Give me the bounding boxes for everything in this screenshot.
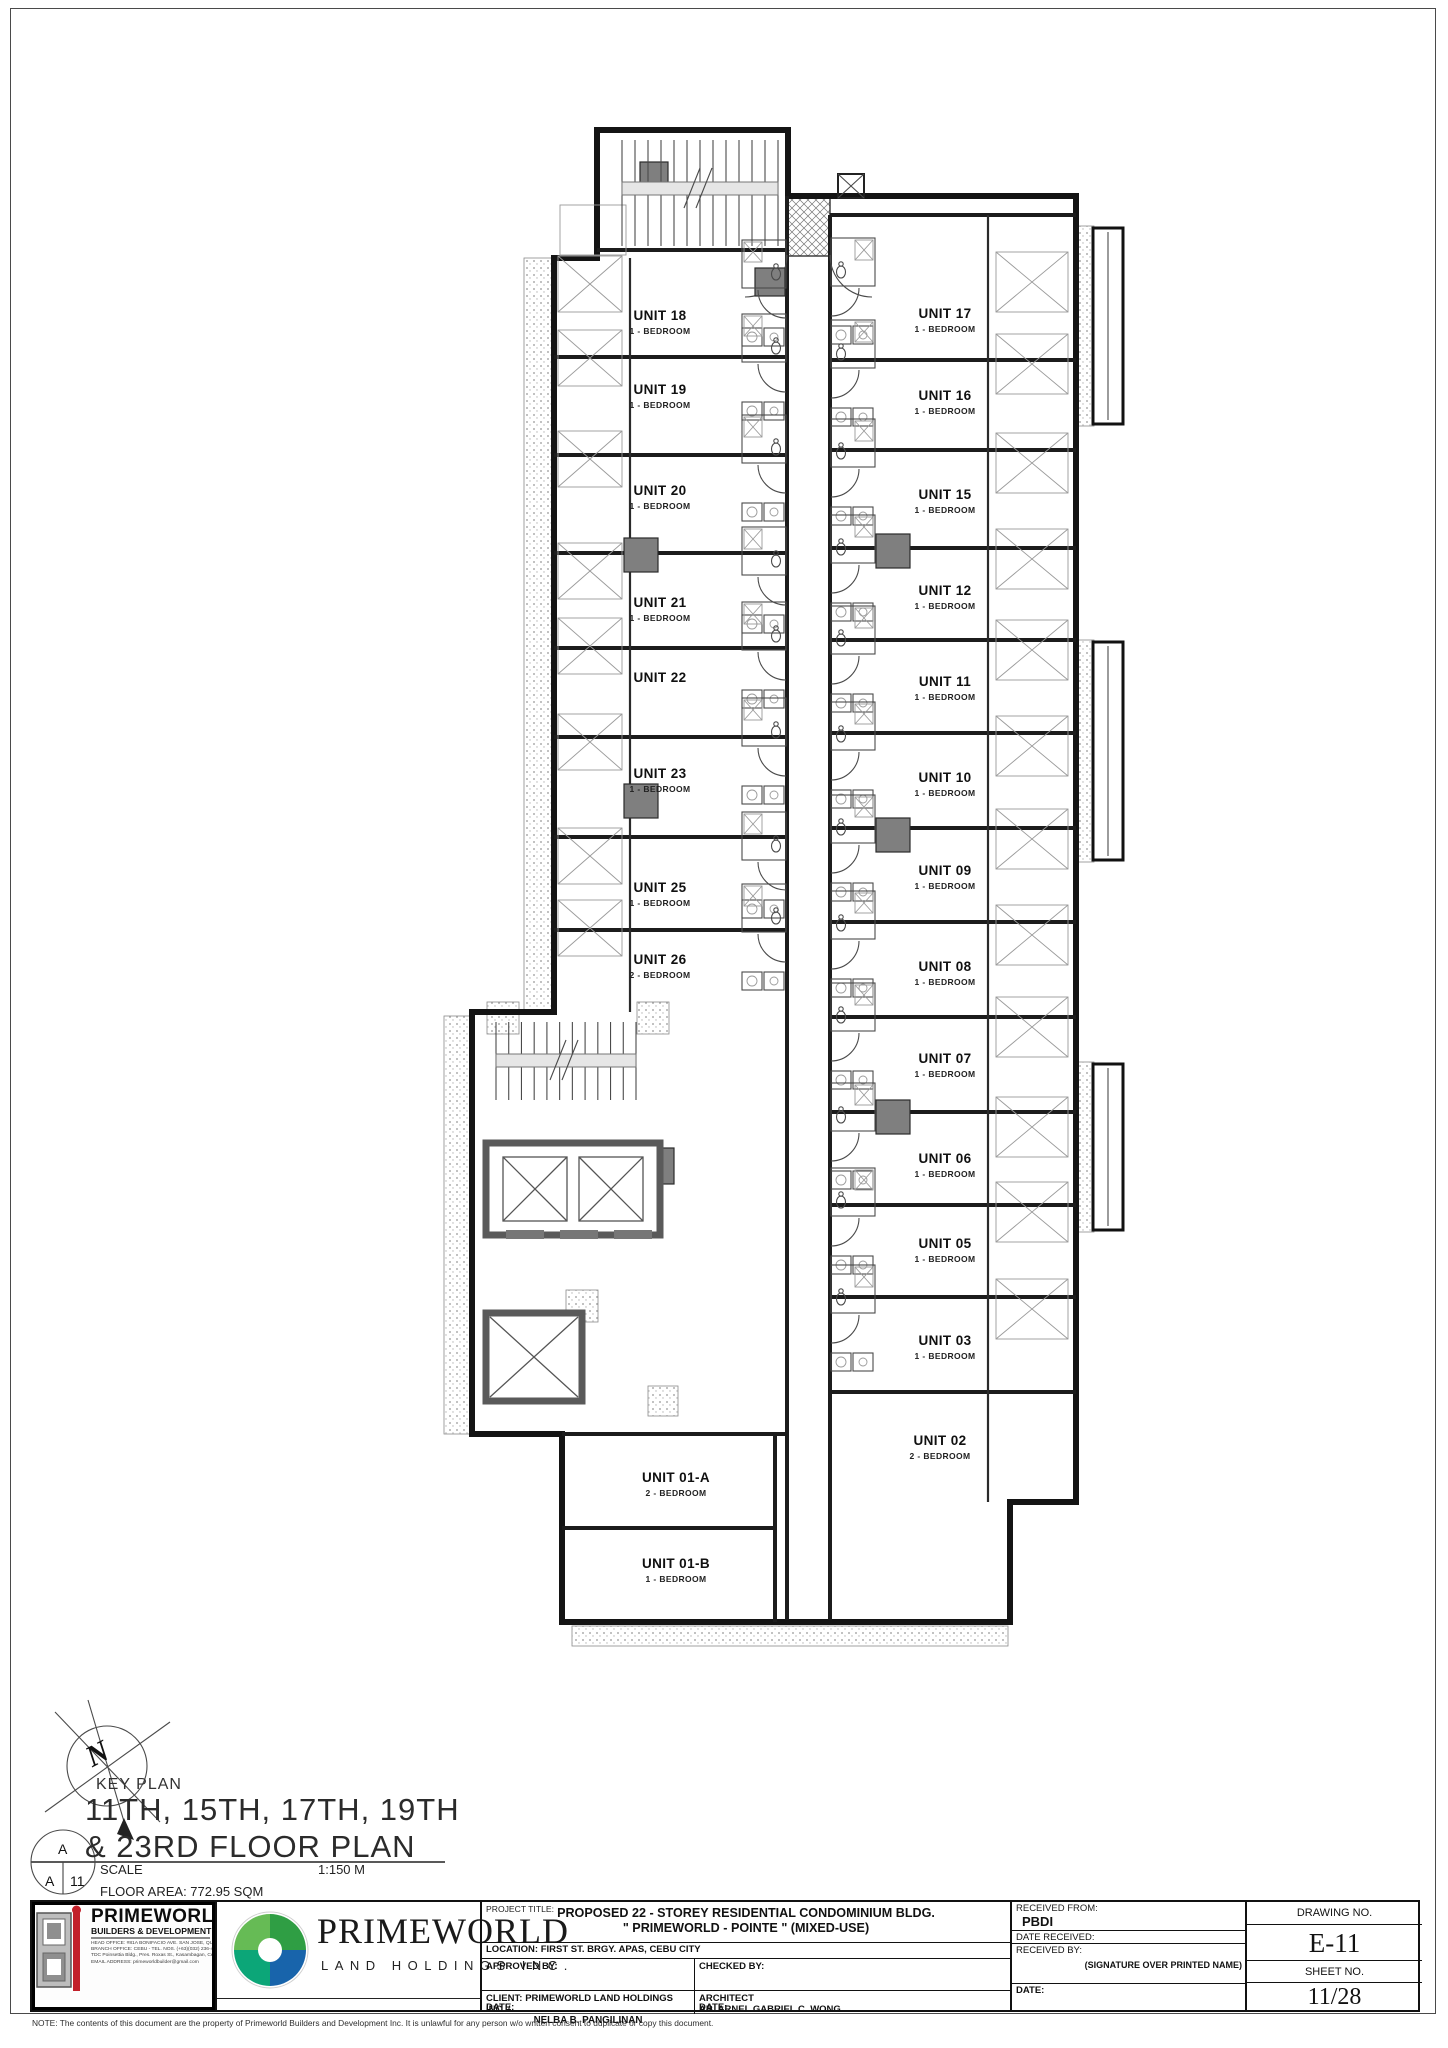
checked-by-label: CHECKED BY: <box>699 1961 764 1972</box>
unit-type-label: 1 - BEDROOM <box>914 788 975 798</box>
copyright-note: NOTE: The contents of this document are … <box>32 2018 713 2028</box>
builders-name: PRIMEWORLD <box>91 1907 210 1926</box>
builders-logo-icon <box>35 1905 89 2007</box>
marker-top-label: A <box>58 1841 68 1857</box>
unit-name-label: UNIT 08 <box>918 959 971 974</box>
received-by-label: RECEIVED BY: <box>1016 1945 1082 1956</box>
floor-plan-title-line2: & 23RD FLOOR PLAN <box>85 1829 416 1865</box>
unit-name-label: UNIT 21 <box>633 595 686 610</box>
unit-name-label: UNIT 20 <box>633 483 686 498</box>
builders-logo-cell: PRIMEWORLD BUILDERS & DEVELOPMENT INC. H… <box>32 1902 215 2010</box>
unit-type-label: 2 - BEDROOM <box>909 1451 970 1461</box>
location-row: LOCATION: FIRST ST. BRGY. APAS, CEBU CIT… <box>482 1942 1010 1958</box>
unit-type-label: 1 - BEDROOM <box>629 784 690 794</box>
north-letter: N <box>79 1734 116 1774</box>
architect-date-label: DATE: <box>699 2002 727 2013</box>
unit-type-label: 1 - BEDROOM <box>629 613 690 623</box>
unit-type-label: 1 - BEDROOM <box>629 400 690 410</box>
unit-type-label: 1 - BEDROOM <box>914 1254 975 1264</box>
unit-type-label: 1 - BEDROOM <box>914 692 975 702</box>
drawing-sheet: UNIT 181 - BEDROOMUNIT 191 - BEDROOMUNIT… <box>0 0 1448 2048</box>
client-date-label: DATE: <box>486 2002 514 2013</box>
floor-plan-drawing: UNIT 181 - BEDROOMUNIT 191 - BEDROOMUNIT… <box>0 0 1448 2048</box>
scale-value: 1:150 M <box>318 1862 365 1877</box>
received-from-row: RECEIVED FROM: PBDI <box>1012 1902 1245 1930</box>
unit-name-label: UNIT 22 <box>633 670 686 685</box>
unit-type-label: 1 - BEDROOM <box>629 501 690 511</box>
project-info-cell: PROJECT TITLE: PROPOSED 22 - STOREY RESI… <box>480 1902 1010 2010</box>
location-text: LOCATION: FIRST ST. BRGY. APAS, CEBU CIT… <box>486 1944 701 1955</box>
unit-unit-07: UNIT 071 - BEDROOM <box>831 983 1068 1089</box>
stair-run <box>622 140 778 246</box>
received-from-value: PBDI <box>1016 1914 1241 1929</box>
unit-name-label: UNIT 01-B <box>642 1556 710 1571</box>
unit-name-label: UNIT 12 <box>918 583 971 598</box>
unit-type-label: 1 - BEDROOM <box>629 898 690 908</box>
unit-type-label: 1 - BEDROOM <box>914 601 975 611</box>
sheet-no-value: 11/28 <box>1247 1982 1422 2010</box>
unit-unit-17: UNIT 171 - BEDROOM <box>831 238 1068 344</box>
unit-unit-12: UNIT 121 - BEDROOM <box>831 515 1068 621</box>
drawing-no-value: E-11 <box>1247 1924 1422 1960</box>
unit-name-label: UNIT 05 <box>918 1236 971 1251</box>
date-received-row: DATE RECEIVED: <box>1012 1930 1245 1943</box>
unit-type-label: 1 - BEDROOM <box>914 1351 975 1361</box>
unit-name-label: UNIT 26 <box>633 952 686 967</box>
unit-unit-01-b: UNIT 01-B1 - BEDROOM <box>642 1556 710 1584</box>
unit-name-label: UNIT 15 <box>918 487 971 502</box>
unit-name-label: UNIT 10 <box>918 770 971 785</box>
unit-name-label: UNIT 19 <box>633 382 686 397</box>
unit-type-label: 1 - BEDROOM <box>914 977 975 987</box>
received-by-row: RECEIVED BY: (SIGNATURE OVER PRINTED NAM… <box>1012 1943 1245 1983</box>
builders-address-line: TDC Poinsettia Bldg., Pres. Roxas St., K… <box>91 1953 210 1959</box>
elevator-core <box>486 1143 660 1401</box>
approvals-row: APPROVED BY: CHECKED BY: <box>482 1958 1010 1990</box>
project-title-line1: PROPOSED 22 - STOREY RESIDENTIAL CONDOMI… <box>486 1906 1006 1921</box>
floor-area: FLOOR AREA: 772.95 SQM <box>100 1884 263 1899</box>
drawing-number-cell: DRAWING NO. E-11 SHEET NO. 11/28 <box>1245 1902 1422 2010</box>
unit-type-label: 2 - BEDROOM <box>629 970 690 980</box>
title-block: PRIMEWORLD BUILDERS & DEVELOPMENT INC. H… <box>30 1900 1420 2012</box>
marker-bottom-right-label: 11 <box>70 1873 85 1889</box>
unit-unit-21: UNIT 211 - BEDROOM <box>558 527 786 633</box>
unit-name-label: UNIT 18 <box>633 308 686 323</box>
date-received-label: DATE RECEIVED: <box>1016 1932 1094 1943</box>
right-balcony-rails <box>1093 228 1123 1230</box>
unit-type-label: 1 - BEDROOM <box>914 324 975 334</box>
unit-name-label: UNIT 16 <box>918 388 971 403</box>
unit-name-label: UNIT 06 <box>918 1151 971 1166</box>
unit-unit-09: UNIT 091 - BEDROOM <box>831 795 1068 901</box>
unit-unit-08: UNIT 081 - BEDROOM <box>831 891 1068 997</box>
unit-name-label: UNIT 02 <box>913 1433 966 1448</box>
unit-name-label: UNIT 23 <box>633 766 686 781</box>
unit-type-label: 2 - BEDROOM <box>645 1488 706 1498</box>
unit-name-label: UNIT 01-A <box>642 1470 710 1485</box>
received-date-row: DATE: <box>1012 1983 1245 2010</box>
scale-label: SCALE <box>100 1862 143 1877</box>
unit-name-label: UNIT 11 <box>919 674 971 689</box>
unit-type-label: 1 - BEDROOM <box>914 1169 975 1179</box>
unit-name-label: UNIT 09 <box>918 863 971 878</box>
received-from-label: RECEIVED FROM: <box>1016 1903 1241 1914</box>
unit-type-label: 1 - BEDROOM <box>629 326 690 336</box>
floor-plan-title-line1: 11TH, 15TH, 17TH, 19TH <box>85 1792 460 1828</box>
received-cell: RECEIVED FROM: PBDI DATE RECEIVED: RECEI… <box>1010 1902 1245 2010</box>
unit-unit-01-a: UNIT 01-A2 - BEDROOM <box>642 1470 710 1498</box>
unit-unit-11: UNIT 111 - BEDROOM <box>831 606 1068 712</box>
unit-unit-02: UNIT 022 - BEDROOM <box>909 1433 970 1461</box>
units-layer: UNIT 181 - BEDROOMUNIT 191 - BEDROOMUNIT… <box>558 238 1068 1584</box>
architect-name: AR. ARNEL GABRIEL C. WONG <box>699 2004 1006 2015</box>
unit-type-label: 1 - BEDROOM <box>914 406 975 416</box>
unit-type-label: 1 - BEDROOM <box>914 881 975 891</box>
unit-type-label: 1 - BEDROOM <box>914 505 975 515</box>
unit-name-label: UNIT 07 <box>918 1051 971 1066</box>
unit-unit-23: UNIT 231 - BEDROOM <box>558 698 786 804</box>
unit-unit-10: UNIT 101 - BEDROOM <box>831 702 1068 808</box>
unit-type-label: 1 - BEDROOM <box>914 1069 975 1079</box>
unit-name-label: UNIT 03 <box>918 1333 971 1348</box>
unit-type-label: 1 - BEDROOM <box>645 1574 706 1584</box>
unit-unit-15: UNIT 151 - BEDROOM <box>831 419 1068 525</box>
drawing-no-label: DRAWING NO. <box>1247 1902 1422 1924</box>
project-title-row: PROJECT TITLE: PROPOSED 22 - STOREY RESI… <box>482 1902 1010 1942</box>
builders-address-line: EMAIL ADDRESS: primeworldbuilder@gmail.c… <box>91 1960 210 1966</box>
architect-label: ARCHITECT <box>699 1993 1006 2004</box>
holdings-logo-cell: PRIMEWORLD LAND HOLDINGS INC. <box>215 1902 480 2010</box>
marker-bottom-left-label: A <box>45 1873 55 1889</box>
builders-subtitle: BUILDERS & DEVELOPMENT INC. <box>91 1926 210 1939</box>
unit-unit-25: UNIT 251 - BEDROOM <box>558 812 786 918</box>
unit-name-label: UNIT 17 <box>918 306 971 321</box>
client-architect-row: CLIENT: PRIMEWORLD LAND HOLDINGS INC. / … <box>482 1990 1010 2014</box>
project-title-label: PROJECT TITLE: <box>486 1904 554 1914</box>
unit-unit-20: UNIT 201 - BEDROOM <box>558 415 786 521</box>
unit-unit-03: UNIT 031 - BEDROOM <box>831 1265 1068 1371</box>
received-date-label: DATE: <box>1016 1985 1044 1996</box>
project-title-line2: " PRIMEWORLD - POINTE " (MIXED-USE) <box>486 1921 1006 1936</box>
approved-by-label: APPROVED BY: <box>486 1961 558 1972</box>
signature-note: (SIGNATURE OVER PRINTED NAME) <box>1085 1960 1242 1970</box>
unit-unit-06: UNIT 061 - BEDROOM <box>831 1083 1068 1189</box>
sheet-no-label: SHEET NO. <box>1247 1960 1422 1982</box>
unit-name-label: UNIT 25 <box>633 880 686 895</box>
unit-unit-05: UNIT 051 - BEDROOM <box>831 1168 1068 1274</box>
